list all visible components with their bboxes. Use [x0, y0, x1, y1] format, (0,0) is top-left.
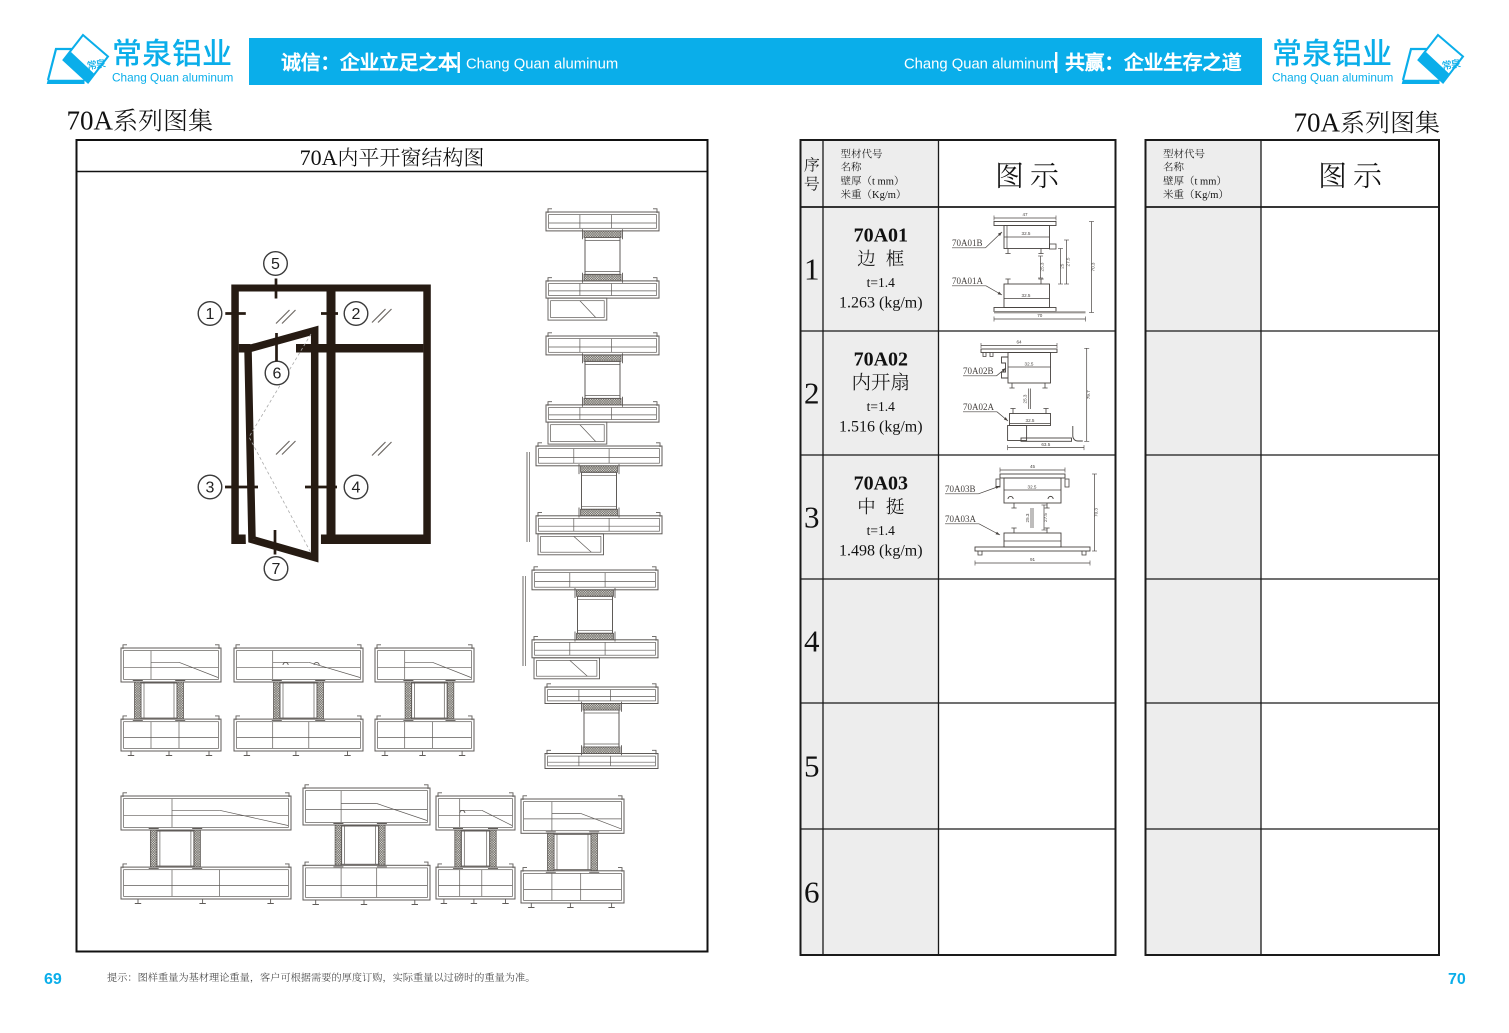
- svg-text:6: 6: [804, 875, 820, 910]
- svg-text:5: 5: [271, 256, 280, 273]
- svg-text:70: 70: [1037, 313, 1043, 318]
- svg-text:70A: 70A: [300, 145, 338, 170]
- svg-text:6: 6: [273, 366, 282, 383]
- svg-text:1: 1: [206, 306, 215, 323]
- svg-text:45: 45: [1030, 464, 1036, 469]
- svg-text:70A03: 70A03: [854, 473, 908, 495]
- svg-text:Chang Quan aluminum: Chang Quan aluminum: [466, 57, 618, 73]
- svg-text:32.5: 32.5: [1022, 231, 1031, 236]
- svg-text:27.5: 27.5: [1066, 257, 1071, 266]
- svg-text:70A: 70A: [1294, 108, 1341, 138]
- svg-text:5: 5: [804, 749, 820, 784]
- svg-text:25.3: 25.3: [1040, 262, 1045, 271]
- svg-text:2: 2: [804, 376, 820, 411]
- svg-text:25.3: 25.3: [1025, 513, 1030, 522]
- svg-text:32.5: 32.5: [1022, 293, 1031, 298]
- svg-text:70A02B: 70A02B: [963, 366, 994, 376]
- svg-text:70A01: 70A01: [854, 225, 908, 247]
- svg-text:70A: 70A: [67, 106, 114, 136]
- svg-text:91: 91: [1030, 557, 1036, 562]
- svg-text:4: 4: [352, 480, 361, 497]
- svg-text:69: 69: [44, 971, 62, 988]
- svg-text:32.5: 32.5: [1026, 418, 1035, 423]
- svg-text:70A01B: 70A01B: [952, 238, 983, 248]
- svg-text:70.3: 70.3: [1091, 262, 1096, 271]
- svg-text:1: 1: [804, 252, 820, 287]
- svg-text:27.5: 27.5: [1043, 513, 1048, 522]
- svg-text:25: 25: [1060, 263, 1065, 269]
- svg-text:Chang Quan aluminum: Chang Quan aluminum: [112, 71, 233, 85]
- svg-text:70: 70: [1448, 971, 1466, 988]
- svg-text:25.3: 25.3: [1023, 394, 1028, 403]
- svg-text:70.3: 70.3: [1094, 508, 1099, 517]
- svg-text:47: 47: [1022, 212, 1028, 217]
- svg-text:64: 64: [1016, 340, 1022, 345]
- svg-text:1.516 (kg/m): 1.516 (kg/m): [839, 419, 923, 436]
- svg-text:Chang Quan aluminum: Chang Quan aluminum: [1272, 71, 1393, 85]
- svg-text:t=1.4: t=1.4: [867, 399, 895, 414]
- svg-text:Kg/m: Kg/m: [1195, 190, 1219, 201]
- svg-text:70A03B: 70A03B: [945, 484, 976, 494]
- svg-text:70A01A: 70A01A: [952, 276, 983, 286]
- svg-text:Chang Quan aluminum: Chang Quan aluminum: [904, 57, 1056, 73]
- svg-text:Kg/m: Kg/m: [872, 190, 896, 201]
- svg-text:t=1.4: t=1.4: [867, 523, 895, 538]
- svg-text:70A02A: 70A02A: [963, 402, 994, 412]
- svg-text:4: 4: [804, 624, 820, 659]
- svg-text:t=1.4: t=1.4: [867, 275, 895, 290]
- svg-text:7: 7: [272, 561, 281, 578]
- svg-text:70A02: 70A02: [854, 349, 908, 371]
- svg-text:70A03A: 70A03A: [945, 514, 976, 524]
- svg-text:79.7: 79.7: [1086, 390, 1091, 399]
- svg-text:3: 3: [206, 480, 215, 497]
- svg-text:t mm: t mm: [1195, 177, 1217, 188]
- svg-text:t mm: t mm: [872, 177, 894, 188]
- svg-text:32.5: 32.5: [1025, 362, 1034, 367]
- svg-text:1.498 (kg/m): 1.498 (kg/m): [839, 543, 923, 560]
- svg-text:32.5: 32.5: [1028, 485, 1037, 490]
- svg-text:1.263 (kg/m): 1.263 (kg/m): [839, 295, 923, 312]
- svg-text:2: 2: [352, 306, 361, 323]
- svg-text:63.5: 63.5: [1041, 442, 1050, 447]
- svg-text:3: 3: [804, 500, 820, 535]
